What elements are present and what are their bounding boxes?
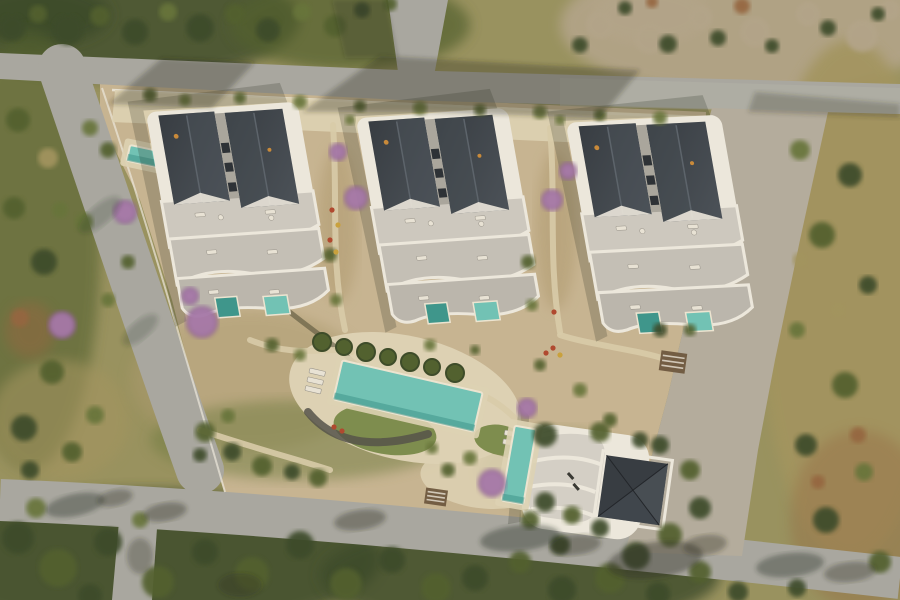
cast-shadow (218, 573, 262, 597)
bush (793, 253, 807, 267)
bush (850, 427, 866, 443)
chimney (224, 162, 234, 171)
terrace-furniture (479, 295, 490, 300)
bush (526, 299, 538, 311)
bush (441, 463, 455, 477)
bush (651, 436, 669, 454)
terrace-furniture (267, 250, 278, 255)
terrace-furniture (475, 216, 486, 221)
bush (591, 519, 609, 537)
bush (94, 528, 122, 556)
terrace-furniture (690, 265, 701, 270)
terrace-furniture (195, 212, 206, 217)
bush (195, 422, 215, 442)
terrain-patch (5, 302, 55, 358)
round-tree (424, 359, 440, 375)
bush (535, 492, 555, 512)
scene-svg (0, 0, 900, 600)
bush (831, 303, 845, 317)
terrace-furniture (687, 224, 698, 229)
bush (193, 448, 207, 462)
cast-shadow (127, 538, 153, 574)
bush (29, 5, 47, 23)
bush (122, 19, 148, 45)
chimney (650, 196, 660, 206)
bush (294, 349, 306, 361)
bush (293, 95, 307, 109)
bush (186, 14, 214, 42)
round-tree (380, 349, 396, 365)
terrace-furniture (265, 210, 276, 215)
flower-bed (557, 352, 562, 357)
bush (710, 30, 726, 46)
bush (330, 294, 342, 306)
chimney (438, 188, 448, 197)
bush (379, 547, 405, 573)
chimney (434, 168, 444, 177)
bush (265, 338, 279, 352)
bush (40, 360, 64, 384)
bush (789, 322, 805, 338)
terrace-furniture (206, 250, 217, 255)
bush (811, 475, 825, 489)
bush (426, 442, 438, 454)
bush (256, 18, 280, 42)
bush (796, 2, 820, 26)
bush (293, 3, 311, 21)
terrace-furniture (628, 264, 639, 269)
terrace-furniture (616, 226, 627, 231)
bush (345, 115, 355, 125)
bush (820, 20, 836, 36)
purple-tree (182, 288, 198, 304)
terrace-furniture (630, 305, 641, 310)
bush (859, 276, 877, 294)
bush (765, 39, 779, 53)
bush (424, 339, 436, 351)
bush (533, 423, 557, 447)
bush (0, 15, 25, 41)
bush (39, 549, 77, 587)
flower-bed (333, 249, 338, 254)
bush (252, 456, 272, 476)
terrace-furniture (208, 290, 219, 295)
bush (740, 17, 770, 47)
purple-tree (560, 163, 576, 179)
flower-bed (329, 207, 334, 212)
bush (586, 11, 614, 39)
bush (659, 35, 677, 53)
bush (62, 442, 82, 462)
round-tree (401, 353, 419, 371)
chimney (646, 175, 656, 185)
bush (684, 324, 696, 336)
bush (573, 383, 587, 397)
purple-tree (330, 144, 346, 160)
bush (284, 464, 300, 480)
bush (223, 443, 241, 461)
plunge-pool (473, 301, 500, 321)
bush (2, 522, 34, 554)
bush (462, 565, 488, 591)
bush (53, 15, 83, 45)
bush (90, 6, 110, 26)
bush (534, 359, 546, 371)
pergola (424, 488, 448, 507)
terrace-furniture (416, 256, 427, 261)
bush (846, 20, 878, 52)
bush (463, 451, 477, 465)
plunge-pool (425, 302, 450, 323)
bush (788, 579, 806, 597)
bush (11, 415, 37, 441)
bush (234, 92, 246, 104)
bush (563, 506, 581, 524)
round-tree (357, 343, 375, 361)
pergola (659, 350, 688, 373)
bush (680, 460, 700, 480)
bush (225, 4, 245, 24)
bush (470, 345, 480, 355)
flower-bed (551, 309, 556, 314)
flower-bed (550, 345, 555, 350)
terrace-furniture (405, 218, 416, 223)
round-tree (446, 364, 464, 382)
bush (809, 222, 835, 248)
bush (3, 197, 25, 219)
bush (618, 1, 632, 15)
bush (52, 202, 68, 218)
bush (871, 7, 885, 21)
flower-bed (327, 237, 332, 242)
bush (159, 3, 177, 21)
bush (309, 469, 327, 487)
bush (653, 111, 667, 125)
bush (100, 142, 116, 158)
chimney (228, 182, 238, 191)
bush (632, 432, 648, 448)
bush (21, 461, 39, 479)
bush (121, 255, 135, 269)
bush (11, 309, 29, 327)
plunge-pool (263, 295, 290, 315)
purple-tree (187, 307, 217, 337)
bush (653, 323, 667, 337)
bush (855, 463, 873, 481)
terrace-furniture (418, 296, 429, 301)
aerial-render (0, 0, 900, 600)
bush (832, 372, 858, 398)
purple-tree (518, 399, 536, 417)
bush (838, 163, 862, 187)
bush (101, 293, 115, 307)
bush (38, 148, 58, 168)
bush (790, 140, 810, 160)
bush (795, 434, 817, 456)
purple-tree (345, 187, 367, 209)
bush (26, 498, 46, 518)
flower-bed (543, 350, 548, 355)
bush (192, 539, 218, 565)
purple-tree (542, 190, 562, 210)
bush (688, 6, 712, 30)
purple-tree (49, 312, 75, 338)
flower-bed (339, 428, 344, 433)
bush (330, 568, 362, 600)
bush (813, 507, 839, 533)
bush (82, 120, 98, 136)
flower-bed (335, 222, 340, 227)
round-tree (336, 339, 352, 355)
terrace-furniture (477, 256, 488, 261)
purple-tree (479, 470, 505, 496)
bush (6, 108, 30, 132)
bush (31, 249, 57, 275)
round-tree (313, 333, 331, 351)
flower-bed (331, 424, 336, 429)
bush (590, 422, 610, 442)
terrace-furniture (269, 289, 280, 294)
bush (286, 531, 314, 559)
bush (521, 255, 535, 269)
plunge-pool (215, 296, 240, 317)
bush (221, 409, 235, 423)
terrace-furniture (692, 306, 703, 311)
bush (86, 406, 104, 424)
bush (509, 551, 531, 573)
bush (689, 497, 711, 519)
bush (572, 37, 588, 53)
